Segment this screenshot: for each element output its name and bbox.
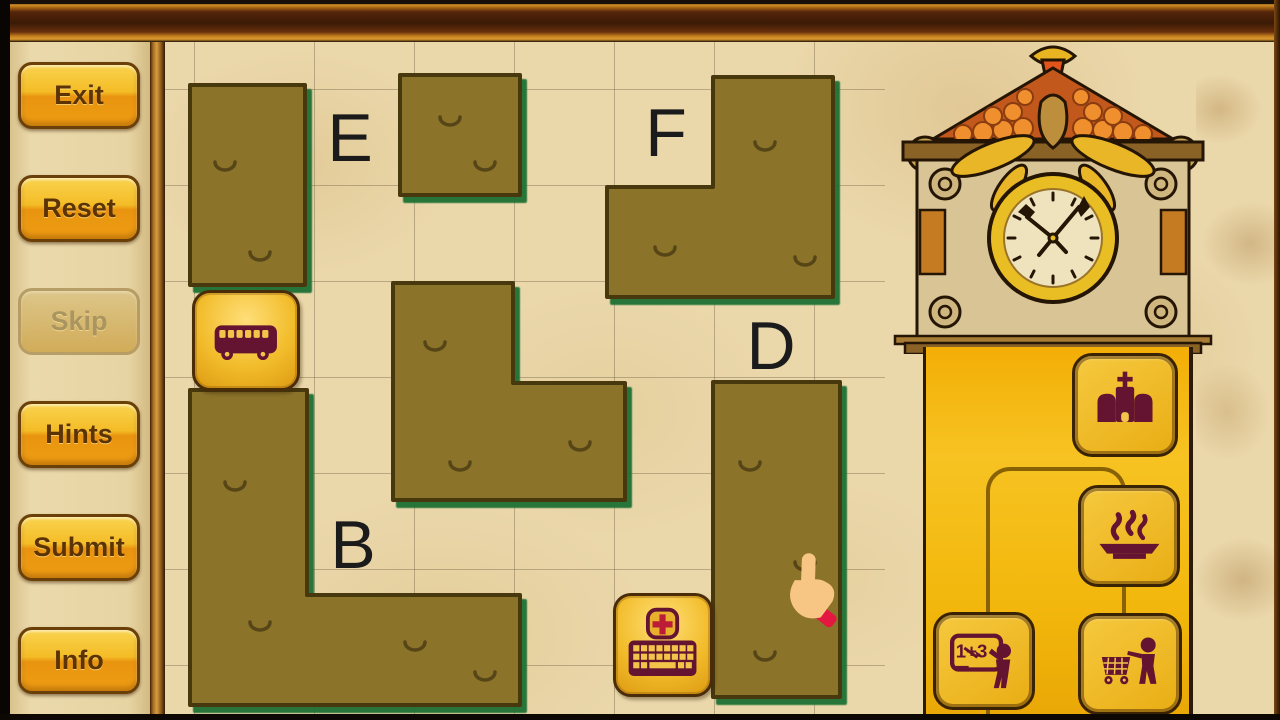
church-icon — [1086, 367, 1164, 443]
sidebar: ExitResetSkipHintsSubmitInfo — [10, 42, 150, 714]
school-icon: 1+3 — [947, 625, 1022, 697]
grid-label-f: F — [645, 99, 687, 167]
grid-label-e: E — [327, 104, 372, 172]
parchment-edge — [1196, 42, 1274, 714]
game-screen: ExitResetSkipHintsSubmitInfo EFDB — [0, 0, 1280, 720]
info-button[interactable]: Info — [18, 627, 140, 694]
skip-button: Skip — [18, 288, 140, 355]
left-frame-edge — [0, 0, 10, 720]
bottom-frame-bar — [0, 714, 1280, 720]
keyboard-cross-icon — [624, 605, 701, 685]
svg-text:1+3: 1+3 — [955, 640, 987, 661]
hedge-mid-corner[interactable] — [393, 283, 625, 500]
dish-button[interactable] — [1078, 485, 1180, 587]
reset-button[interactable]: Reset — [18, 175, 140, 242]
church-button[interactable] — [1072, 353, 1178, 457]
school-button[interactable]: 1+3 — [933, 612, 1035, 710]
dish-icon — [1092, 499, 1167, 574]
bus-tile[interactable] — [192, 290, 300, 391]
puzzle-board: EFDB — [165, 42, 1274, 714]
cart-button[interactable] — [1078, 613, 1182, 714]
sidebar-trim — [150, 42, 165, 714]
cart-icon — [1092, 627, 1168, 702]
top-frame-bar — [0, 0, 1280, 42]
clock-illustration — [865, 42, 1215, 354]
keyboard-tile[interactable] — [613, 593, 713, 697]
hedge-d-column[interactable] — [713, 382, 840, 697]
exit-button[interactable]: Exit — [18, 62, 140, 129]
grid-label-b: B — [330, 511, 375, 579]
right-frame-edge — [1274, 0, 1280, 720]
hedge-f-corner[interactable] — [607, 77, 833, 297]
submit-button[interactable]: Submit — [18, 514, 140, 581]
bus-icon — [204, 302, 288, 380]
hints-button[interactable]: Hints — [18, 401, 140, 468]
hedge-e-column[interactable] — [190, 85, 305, 285]
hedge-top-square[interactable] — [400, 75, 520, 195]
grid-label-d: D — [746, 312, 795, 380]
